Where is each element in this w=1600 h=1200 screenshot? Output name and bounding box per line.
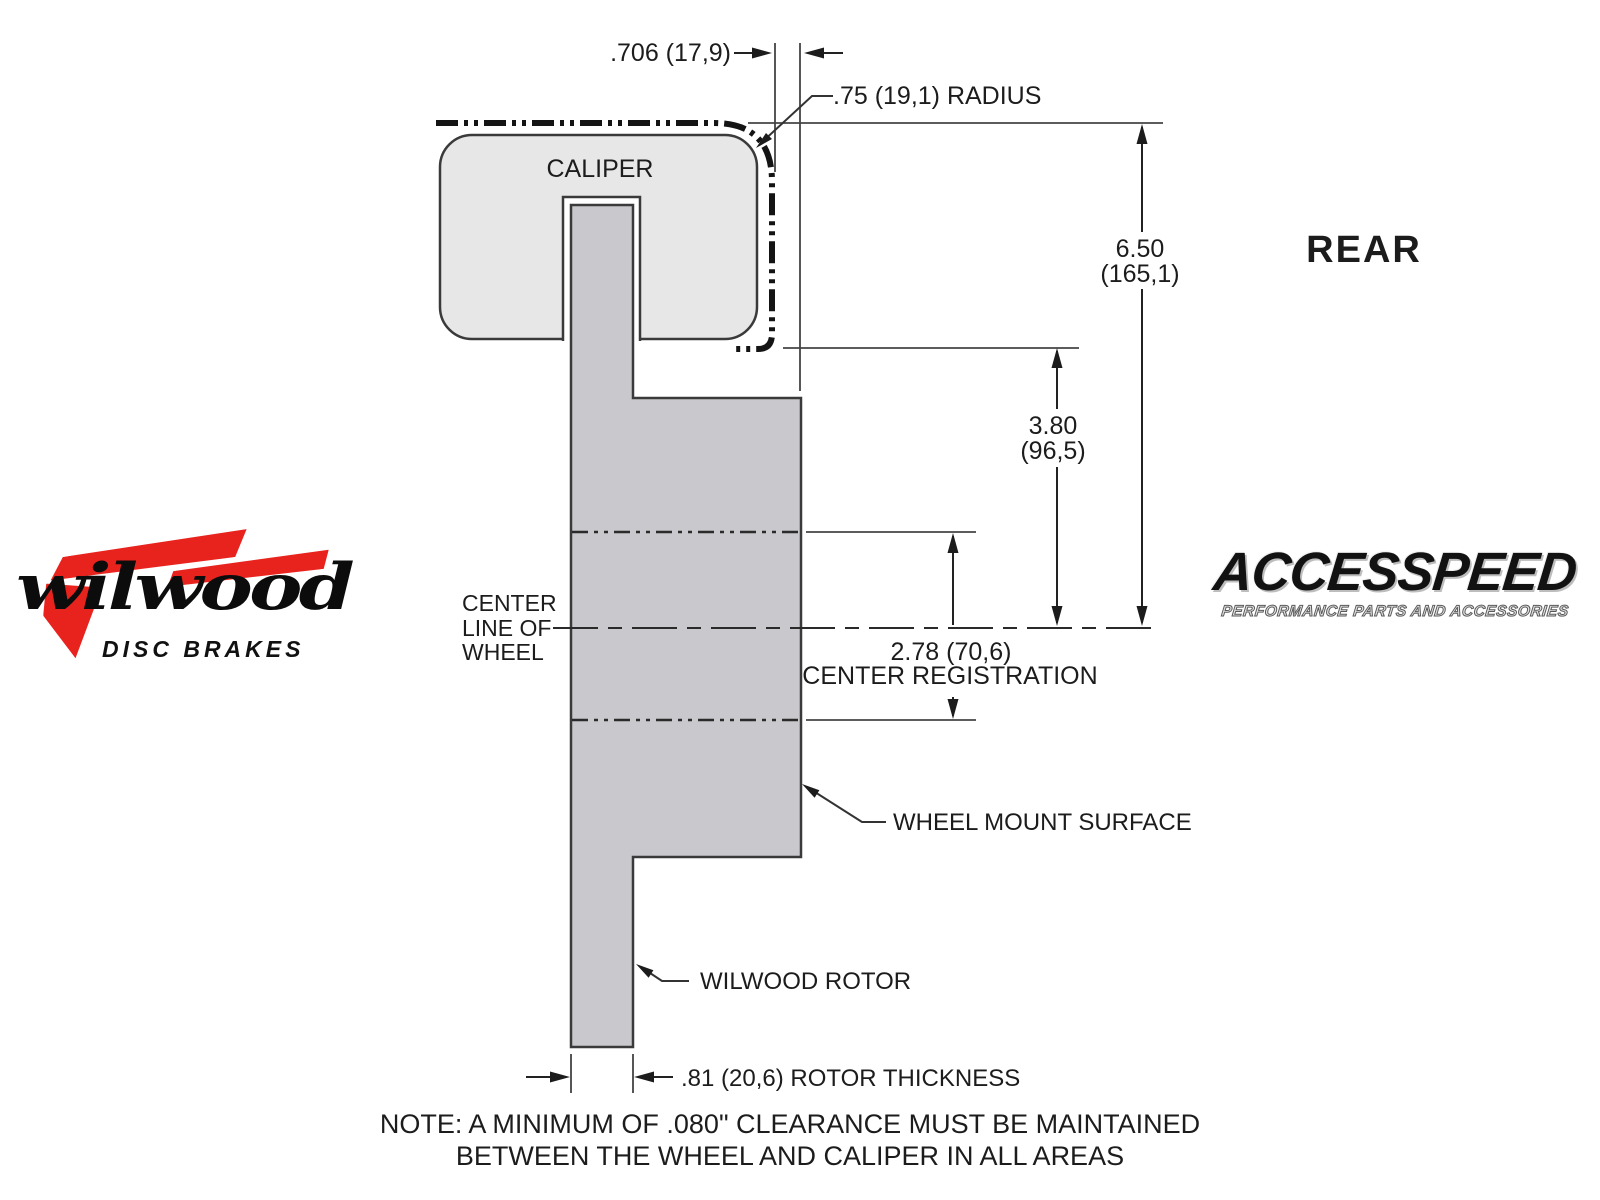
centerline-label-line1: CENTER <box>462 590 557 616</box>
dim-380-down-arrow-icon <box>1052 606 1063 626</box>
dim-278-up-arrow-icon <box>948 533 959 553</box>
dim-radius-label: .75 (19,1) RADIUS <box>833 82 1041 110</box>
accesspeed-logo: ACCESSPEED PERFORMANCE PARTS AND ACCESSO… <box>1195 545 1595 621</box>
dim-caliper-offset-label: .706 (17,9) <box>610 39 731 67</box>
dim-650-up-arrow-icon <box>1137 124 1148 144</box>
accesspeed-tagline: PERFORMANCE PARTS AND ACCESSORIES <box>1194 603 1596 621</box>
dim-drop-mm-label: (96,5) <box>1020 437 1085 465</box>
dim-650-down-arrow-icon <box>1137 606 1148 626</box>
dim-offset-right-arrow-icon <box>752 48 772 59</box>
dim-rotor-thickness-label: .81 (20,6) ROTOR THICKNESS <box>681 1065 1020 1092</box>
rotor-leader-arrow-icon <box>636 964 653 978</box>
wilwood-logo: wilwood DISC BRAKES <box>14 542 344 664</box>
wheel-mount-leader-line <box>807 787 886 822</box>
dim-278-down-arrow-icon <box>948 699 959 719</box>
page: .706 (17,9) .75 (19,1) RADIUS CALIPER RE… <box>0 0 1600 1200</box>
centerline-label-line3: WHEEL <box>462 639 544 665</box>
wilwood-tagline: DISC BRAKES <box>102 636 304 663</box>
wilwood-wordmark: wilwood <box>16 556 351 620</box>
dim-380-up-arrow-icon <box>1052 348 1063 368</box>
clearance-note-line2: BETWEEN THE WHEEL AND CALIPER IN ALL ARE… <box>456 1141 1124 1171</box>
dim-registration-label: CENTER REGISTRATION <box>802 662 1097 690</box>
dim-offset-left-arrow-icon <box>804 48 824 59</box>
wilwood-rotor-label: WILWOOD ROTOR <box>700 968 911 995</box>
dim-rotor-right-arrow-icon <box>550 1072 570 1083</box>
clearance-note-line1: NOTE: A MINIMUM OF .080" CLEARANCE MUST … <box>380 1109 1200 1139</box>
dim-drop-in-label: 3.80 <box>1029 412 1078 440</box>
accesspeed-wordmark: ACCESSPEED <box>1192 545 1598 599</box>
wheel-mount-leader-arrow-icon <box>802 784 819 798</box>
radius-leader-line <box>760 96 833 144</box>
caliper-label: CALIPER <box>547 155 654 183</box>
dim-height-in-label: 6.50 <box>1116 235 1165 263</box>
centerline-label-line2: LINE OF <box>462 615 551 641</box>
dim-height-mm-label: (165,1) <box>1100 260 1179 288</box>
dim-rotor-left-arrow-icon <box>634 1072 654 1083</box>
wheel-mount-surface-label: WHEEL MOUNT SURFACE <box>893 809 1192 836</box>
view-label-rear: REAR <box>1306 229 1422 271</box>
